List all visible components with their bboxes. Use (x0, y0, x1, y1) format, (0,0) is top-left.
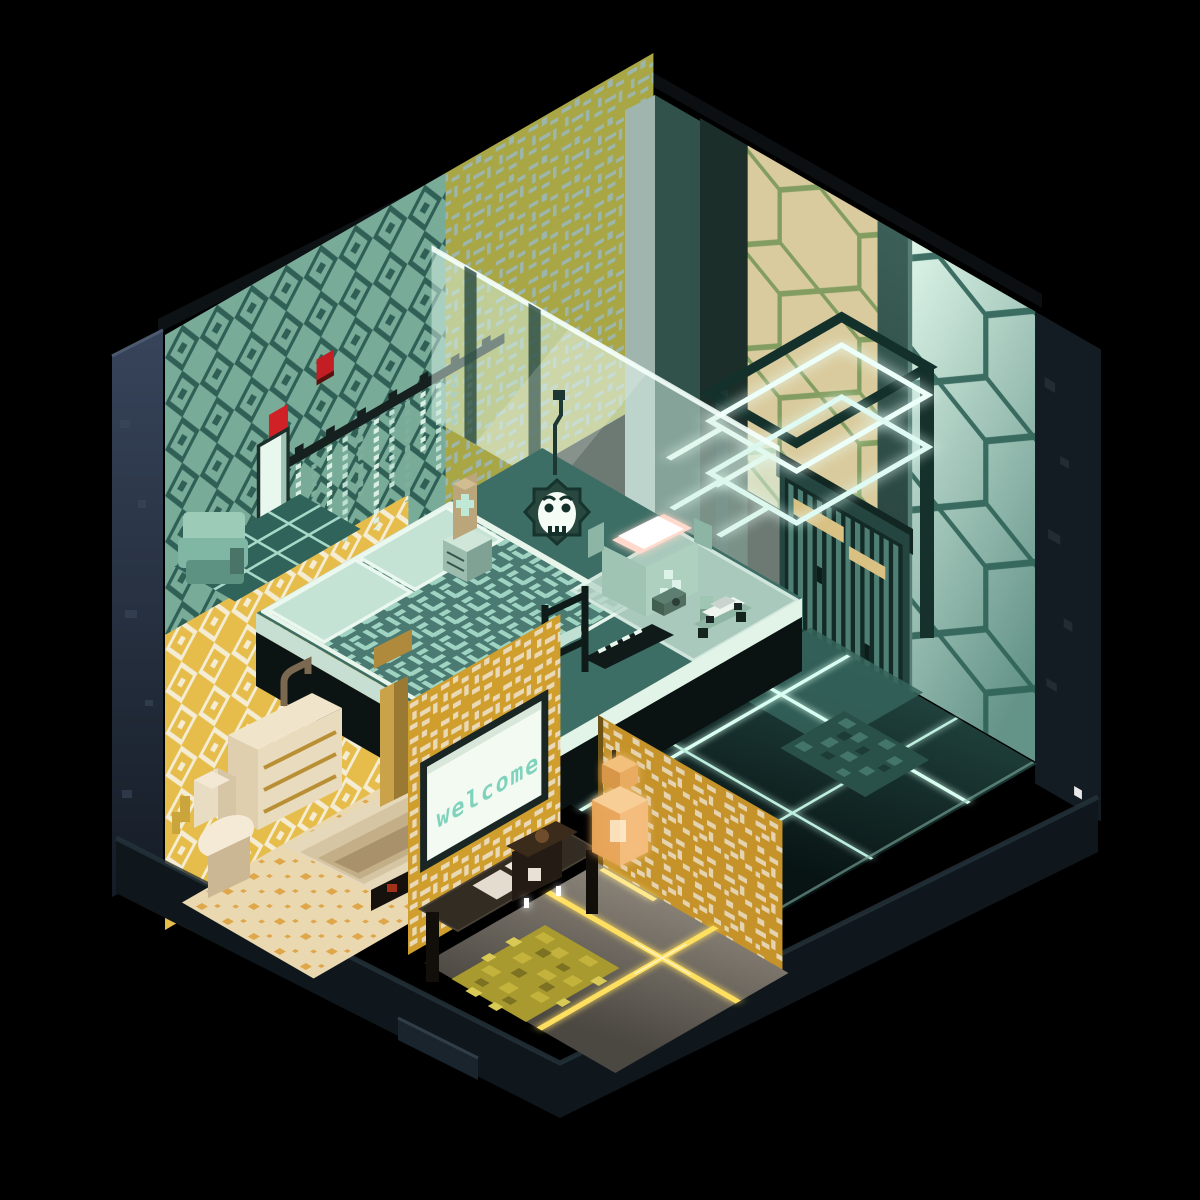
bench-leg (586, 850, 598, 914)
exterior-right-column (1035, 312, 1101, 822)
scene-canvas: welcome (0, 0, 1200, 1200)
exterior-left-wall (112, 330, 163, 897)
voxel-room-diorama: welcome (0, 0, 1200, 1200)
totem-figurine (453, 472, 477, 540)
red-label (387, 884, 397, 892)
bench-leg (426, 912, 439, 982)
towel-pile (178, 512, 248, 584)
